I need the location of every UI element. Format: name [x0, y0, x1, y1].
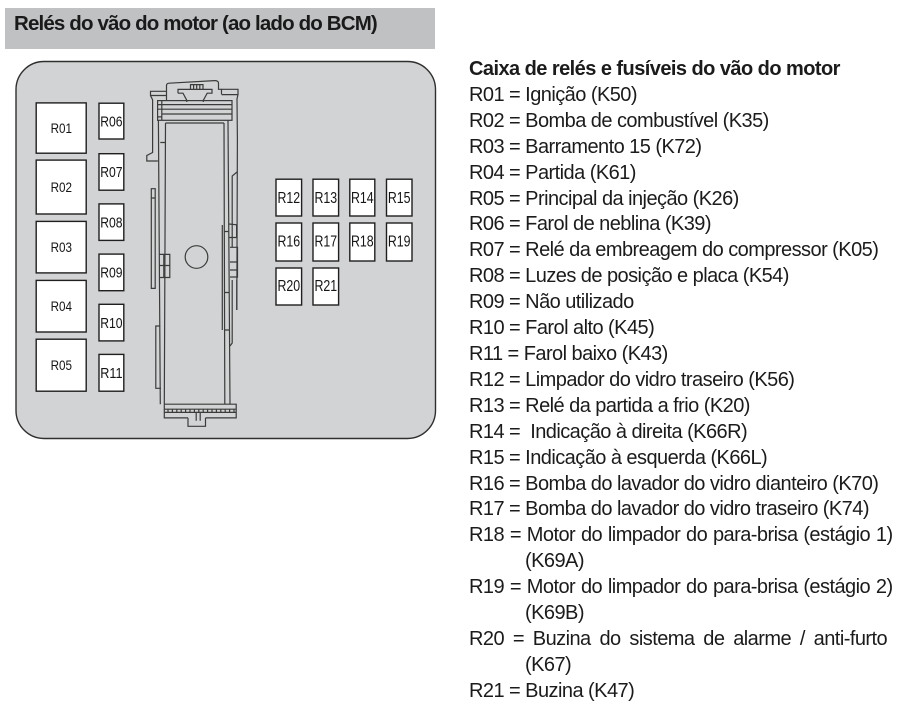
svg-text:R21: R21 [314, 278, 337, 295]
svg-text:R08: R08 [100, 214, 122, 231]
svg-text:R14: R14 [351, 190, 374, 207]
svg-text:R10: R10 [100, 315, 122, 332]
svg-text:R06: R06 [100, 113, 122, 130]
svg-text:R12: R12 [277, 190, 300, 207]
svg-text:R11: R11 [100, 365, 122, 382]
svg-text:R02: R02 [51, 179, 73, 195]
svg-text:R15: R15 [388, 190, 411, 207]
svg-text:R20: R20 [277, 278, 300, 295]
svg-text:R17: R17 [314, 234, 337, 251]
svg-text:R16: R16 [277, 234, 300, 251]
svg-text:R09: R09 [100, 265, 122, 282]
svg-text:R18: R18 [351, 234, 374, 251]
svg-text:R04: R04 [51, 298, 73, 314]
svg-text:R01: R01 [51, 120, 73, 136]
svg-text:R03: R03 [51, 239, 73, 255]
svg-text:R19: R19 [388, 234, 411, 251]
svg-text:R05: R05 [51, 357, 73, 373]
svg-text:R13: R13 [314, 190, 337, 207]
svg-text:R07: R07 [100, 164, 122, 181]
